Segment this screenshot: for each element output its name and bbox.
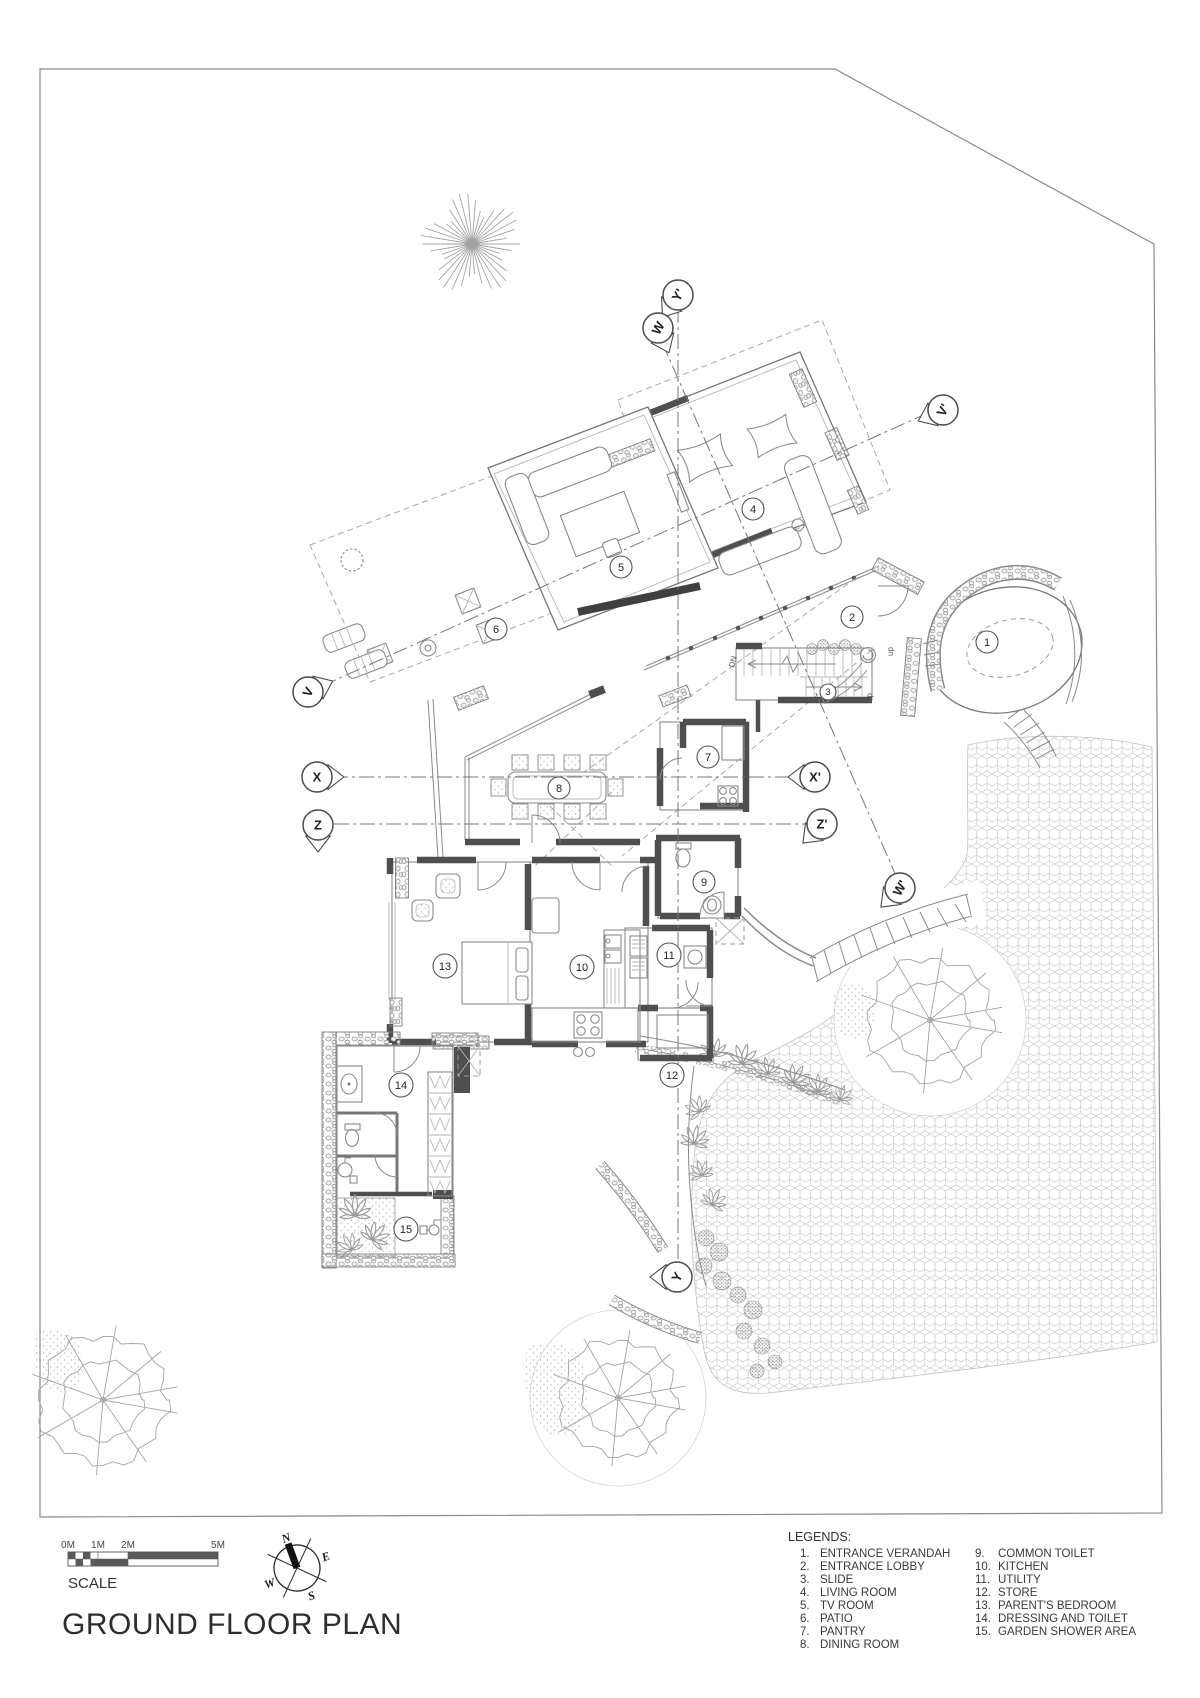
svg-text:9.COMMON TOILET: 9.COMMON TOILET bbox=[975, 1548, 1095, 1560]
section-marker-v: V bbox=[293, 676, 333, 707]
room-number-11: 11 bbox=[657, 943, 681, 967]
svg-text:2: 2 bbox=[849, 612, 855, 624]
scale-bar: 0M 1M 2M 5M SCALE bbox=[61, 1540, 225, 1592]
svg-text:10.KITCHEN: 10.KITCHEN bbox=[975, 1561, 1048, 1573]
room-number-1: 1 bbox=[976, 631, 998, 653]
tree-fan bbox=[421, 194, 520, 290]
section-marker-x-prime: X' bbox=[788, 762, 830, 792]
svg-text:10: 10 bbox=[576, 962, 588, 974]
svg-text:Z: Z bbox=[314, 818, 322, 833]
svg-text:5: 5 bbox=[618, 562, 624, 574]
floor-plan-canvas: up DN up bbox=[0, 0, 1200, 1698]
svg-text:8: 8 bbox=[556, 783, 562, 795]
door-arcs bbox=[375, 758, 724, 1177]
svg-text:9: 9 bbox=[701, 877, 707, 889]
svg-text:Z': Z' bbox=[816, 817, 827, 832]
svg-text:3: 3 bbox=[825, 687, 830, 697]
svg-text:15: 15 bbox=[400, 1224, 412, 1236]
svg-text:X: X bbox=[313, 770, 322, 785]
stair-label-up2: up bbox=[865, 693, 874, 702]
scale-mark-1m: 1M bbox=[91, 1540, 105, 1551]
room-number-12: 12 bbox=[660, 1063, 684, 1087]
stair-label-dn: DN bbox=[727, 655, 739, 669]
svg-text:14: 14 bbox=[395, 1080, 407, 1092]
svg-text:15.GARDEN SHOWER AREA: 15.GARDEN SHOWER AREA bbox=[975, 1626, 1136, 1638]
svg-text:4: 4 bbox=[750, 504, 756, 516]
svg-text:5.TV ROOM: 5.TV ROOM bbox=[800, 1600, 874, 1612]
entrance-verandah bbox=[914, 570, 1097, 730]
svg-text:7.PANTRY: 7.PANTRY bbox=[800, 1626, 866, 1638]
compass-e: E bbox=[319, 1549, 332, 1565]
room-number-6: 6 bbox=[485, 618, 507, 640]
scale-mark-5m: 5M bbox=[211, 1540, 225, 1551]
room-number-9: 9 bbox=[693, 871, 715, 893]
scale-label: SCALE bbox=[68, 1575, 117, 1592]
svg-text:11.UTILITY: 11.UTILITY bbox=[975, 1574, 1041, 1586]
legend-left-column: 1.ENTRANCE VERANDAH 2.ENTRANCE LOBBY 3.S… bbox=[800, 1548, 950, 1651]
svg-text:1.ENTRANCE VERANDAH: 1.ENTRANCE VERANDAH bbox=[800, 1548, 950, 1560]
scale-mark-0m: 0M bbox=[61, 1540, 75, 1551]
svg-text:12.STORE: 12.STORE bbox=[975, 1587, 1038, 1599]
section-marker-z-prime: Z' bbox=[803, 809, 837, 843]
room-number-8: 8 bbox=[548, 777, 570, 799]
svg-text:6.PATIO: 6.PATIO bbox=[800, 1613, 853, 1625]
legend: LEGENDS: 1.ENTRANCE VERANDAH 2.ENTRANCE … bbox=[788, 1530, 1136, 1651]
svg-text:8.DINING ROOM: 8.DINING ROOM bbox=[800, 1639, 899, 1651]
svg-text:11: 11 bbox=[663, 950, 674, 962]
page-title: GROUND FLOOR PLAN bbox=[62, 1608, 402, 1641]
legend-right-column: 9.COMMON TOILET 10.KITCHEN 11.UTILITY 12… bbox=[975, 1548, 1136, 1638]
legend-heading: LEGENDS: bbox=[788, 1530, 851, 1544]
section-marker-v-prime: V' bbox=[918, 395, 958, 426]
svg-text:X': X' bbox=[809, 770, 821, 785]
room-number-3: 3 bbox=[820, 684, 836, 700]
staircase: up DN up bbox=[727, 646, 895, 732]
room-number-7: 7 bbox=[697, 746, 719, 768]
room-number-14: 14 bbox=[389, 1073, 413, 1097]
gravel-patch bbox=[833, 984, 874, 1039]
stair-label-up: up bbox=[886, 647, 895, 656]
scale-mark-2m: 2M bbox=[121, 1540, 135, 1551]
section-marker-x: X bbox=[302, 762, 344, 792]
svg-text:3.SLIDE: 3.SLIDE bbox=[800, 1574, 854, 1586]
north-compass: N E S W bbox=[250, 1519, 343, 1616]
room-number-15: 15 bbox=[394, 1217, 418, 1241]
room-number-2: 2 bbox=[841, 606, 863, 628]
drawing-sheet: up DN up bbox=[0, 0, 1200, 1698]
svg-text:12: 12 bbox=[666, 1070, 678, 1082]
svg-text:6: 6 bbox=[493, 624, 499, 636]
svg-text:14.DRESSING AND TOILET: 14.DRESSING AND TOILET bbox=[975, 1613, 1128, 1625]
section-marker-w: W bbox=[643, 313, 674, 353]
entrance-lobby bbox=[872, 558, 924, 717]
svg-text:2.ENTRANCE LOBBY: 2.ENTRANCE LOBBY bbox=[800, 1561, 925, 1573]
room-number-10: 10 bbox=[570, 955, 594, 979]
gravel-patch bbox=[33, 1330, 82, 1392]
section-marker-y: Y bbox=[650, 1262, 692, 1292]
compass-s: S bbox=[306, 1588, 317, 1604]
svg-text:13: 13 bbox=[439, 961, 451, 973]
svg-text:7: 7 bbox=[705, 752, 711, 764]
section-marker-z: Z bbox=[303, 810, 333, 852]
svg-text:4.LIVING ROOM: 4.LIVING ROOM bbox=[800, 1587, 897, 1599]
room-number-13: 13 bbox=[433, 954, 457, 978]
room-number-4: 4 bbox=[742, 498, 764, 520]
svg-text:13.PARENT'S BEDROOM: 13.PARENT'S BEDROOM bbox=[975, 1600, 1116, 1612]
glass-wall bbox=[465, 757, 469, 840]
room-number-5: 5 bbox=[610, 556, 632, 578]
north-needle bbox=[285, 1542, 300, 1569]
svg-text:1: 1 bbox=[984, 637, 990, 649]
section-marker-y-prime: Y' bbox=[662, 280, 693, 317]
